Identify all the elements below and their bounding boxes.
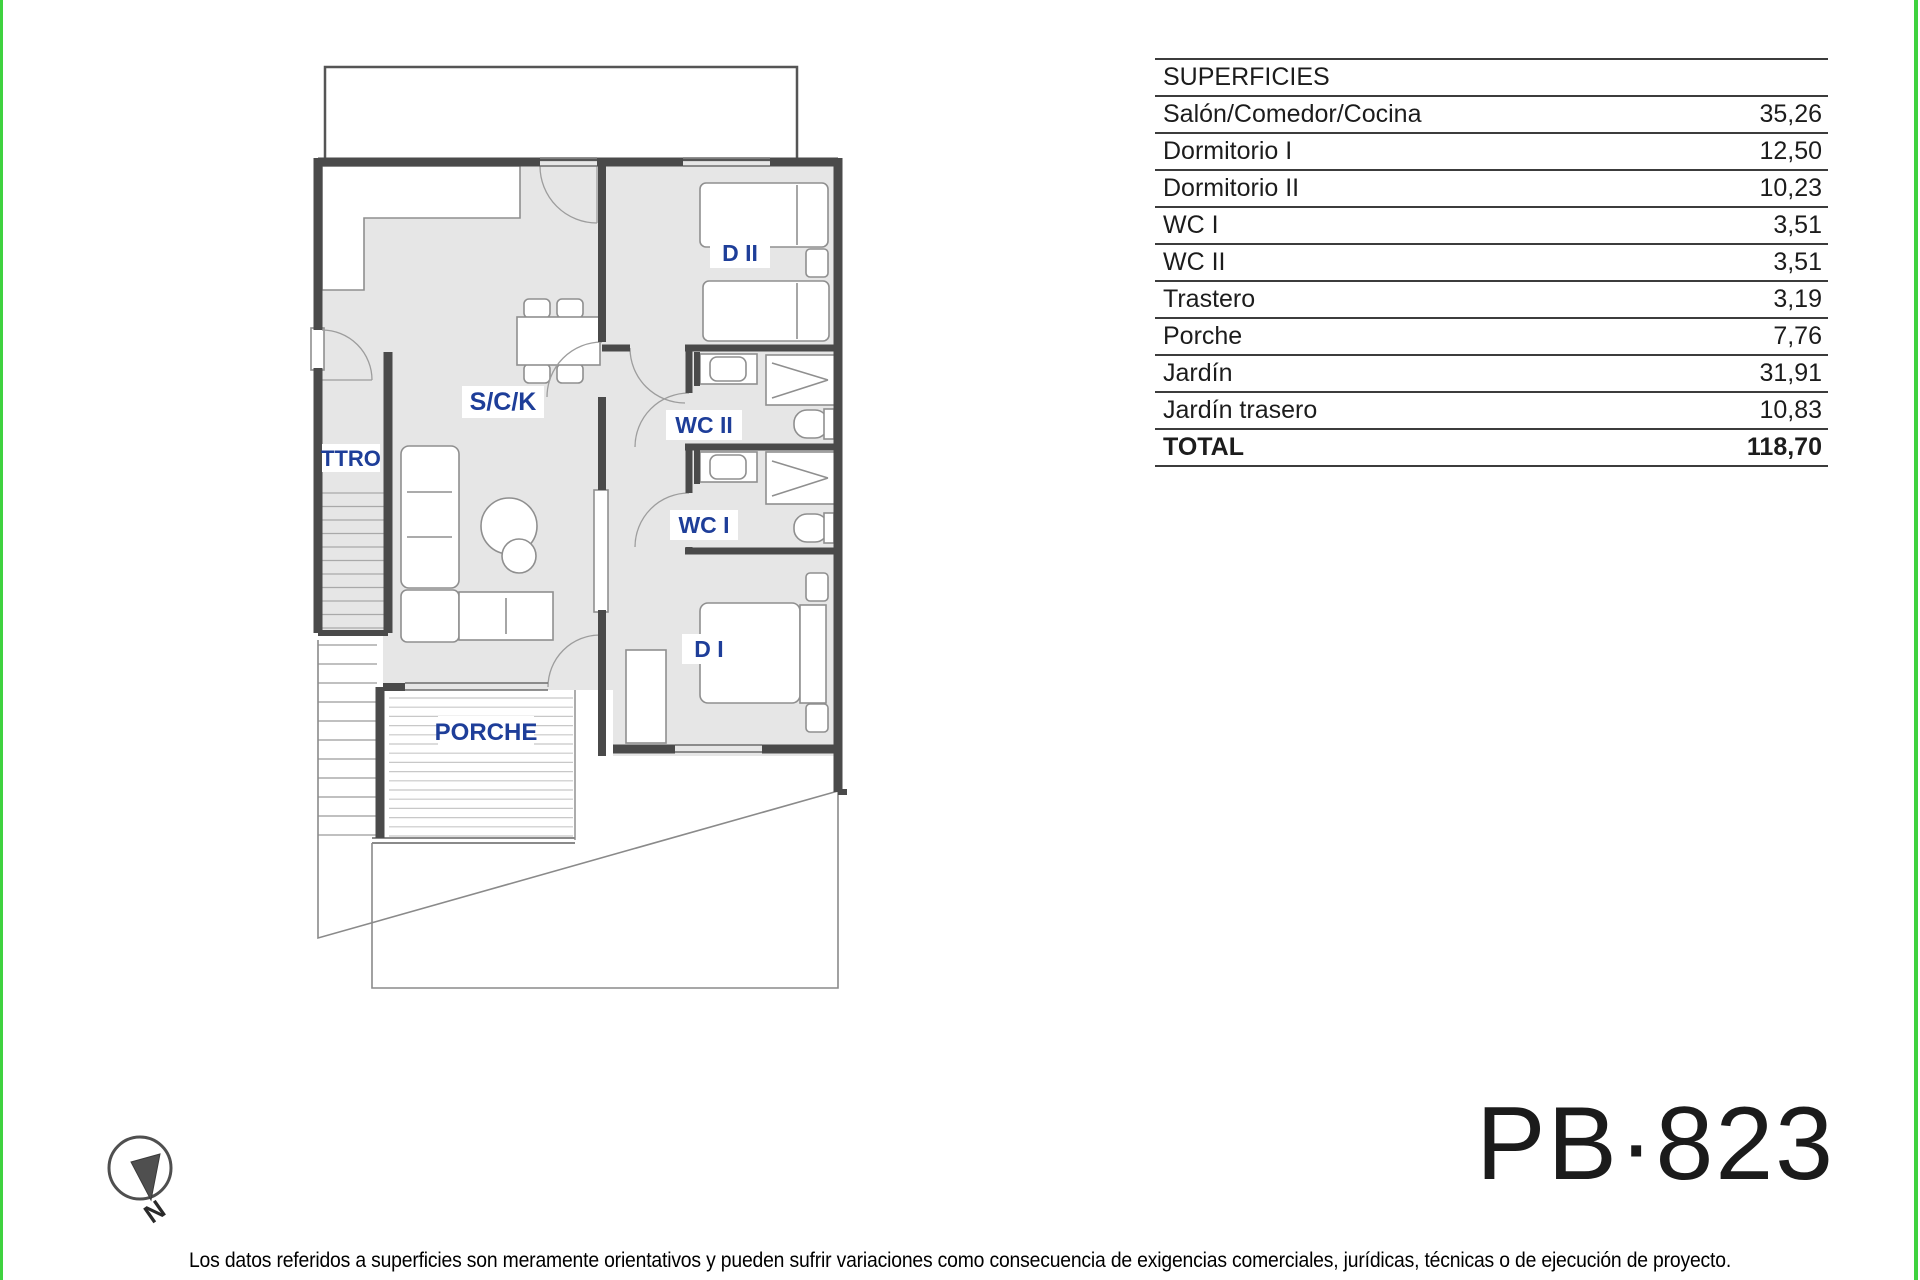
toilet-tank [824, 513, 834, 543]
north-compass: N [109, 1137, 171, 1229]
rear-terrace-outline [325, 67, 797, 160]
bed [700, 183, 828, 247]
table-row: Salón/Comedor/Cocina 35,26 [1155, 97, 1828, 134]
row-label: Jardín trasero [1163, 393, 1317, 428]
row-value: 3,51 [1773, 208, 1822, 243]
row-value: 35,26 [1759, 97, 1822, 132]
row-value: 31,91 [1759, 356, 1822, 391]
row-value: 3,51 [1773, 245, 1822, 280]
label-porche: PORCHE [435, 719, 538, 746]
toilet [794, 514, 828, 542]
dining-table [517, 317, 600, 365]
toilet-tank [824, 409, 834, 439]
row-label: Dormitorio I [1163, 134, 1292, 169]
row-value: 7,76 [1773, 319, 1822, 354]
chair [557, 299, 583, 318]
chair [524, 299, 550, 318]
disclaimer-text: Los datos referidos a superficies son me… [189, 1248, 1731, 1273]
table-header-row: SUPERFICIES [1155, 58, 1828, 97]
table-total-row: TOTAL 118,70 [1155, 430, 1828, 467]
label-wc-2: WC II [675, 412, 733, 438]
side-table [502, 539, 536, 573]
row-value: 3,19 [1773, 282, 1822, 317]
row-label: WC I [1163, 208, 1219, 243]
total-value: 118,70 [1747, 430, 1822, 465]
row-value: 10,23 [1759, 171, 1822, 206]
nightstand [806, 704, 828, 732]
row-label: Dormitorio II [1163, 171, 1299, 206]
sofa [401, 446, 459, 588]
label-salon-comedor-cocina: S/C/K [470, 388, 537, 416]
label-wc-1: WC I [678, 512, 729, 538]
toilet [794, 410, 828, 438]
table-row: Porche 7,76 [1155, 319, 1828, 356]
table-row: Dormitorio I 12,50 [1155, 134, 1828, 171]
nightstand [806, 249, 828, 277]
row-label: Jardín [1163, 356, 1232, 391]
table-row: WC I 3,51 [1155, 208, 1828, 245]
floor-plan-sheet: S/C/K TTRO D II WC II WC I D I PORCHE N … [0, 0, 1920, 1280]
row-value: 10,83 [1759, 393, 1822, 428]
row-label: Porche [1163, 319, 1242, 354]
chair [524, 364, 550, 383]
sink [710, 455, 746, 479]
bed [703, 281, 829, 341]
entry-opening [311, 328, 324, 370]
table-row: Jardín trasero 10,83 [1155, 393, 1828, 430]
sliding-door [594, 490, 608, 612]
plan-code: PB·823 [1476, 1085, 1835, 1204]
label-trastero: TTRO [321, 446, 381, 471]
total-label: TOTAL [1163, 430, 1244, 465]
bed-headboard [800, 605, 826, 703]
sink [710, 357, 746, 381]
row-label: Salón/Comedor/Cocina [1163, 97, 1421, 132]
chair [557, 364, 583, 383]
table-row: WC II 3,51 [1155, 245, 1828, 282]
row-value: 12,50 [1759, 134, 1822, 169]
label-dormitorio-1: D I [694, 636, 723, 662]
exterior-steps [318, 645, 377, 835]
row-label: WC II [1163, 245, 1226, 280]
ottoman [401, 590, 459, 642]
table-title: SUPERFICIES [1163, 60, 1330, 95]
table-row: Jardín 31,91 [1155, 356, 1828, 393]
table-row: Trastero 3,19 [1155, 282, 1828, 319]
nightstand [806, 573, 828, 601]
table-row: Dormitorio II 10,23 [1155, 171, 1828, 208]
row-label: Trastero [1163, 282, 1255, 317]
wardrobe [626, 650, 666, 743]
surfaces-table: SUPERFICIES Salón/Comedor/Cocina 35,26 D… [1155, 58, 1828, 467]
label-dormitorio-2: D II [722, 240, 758, 266]
